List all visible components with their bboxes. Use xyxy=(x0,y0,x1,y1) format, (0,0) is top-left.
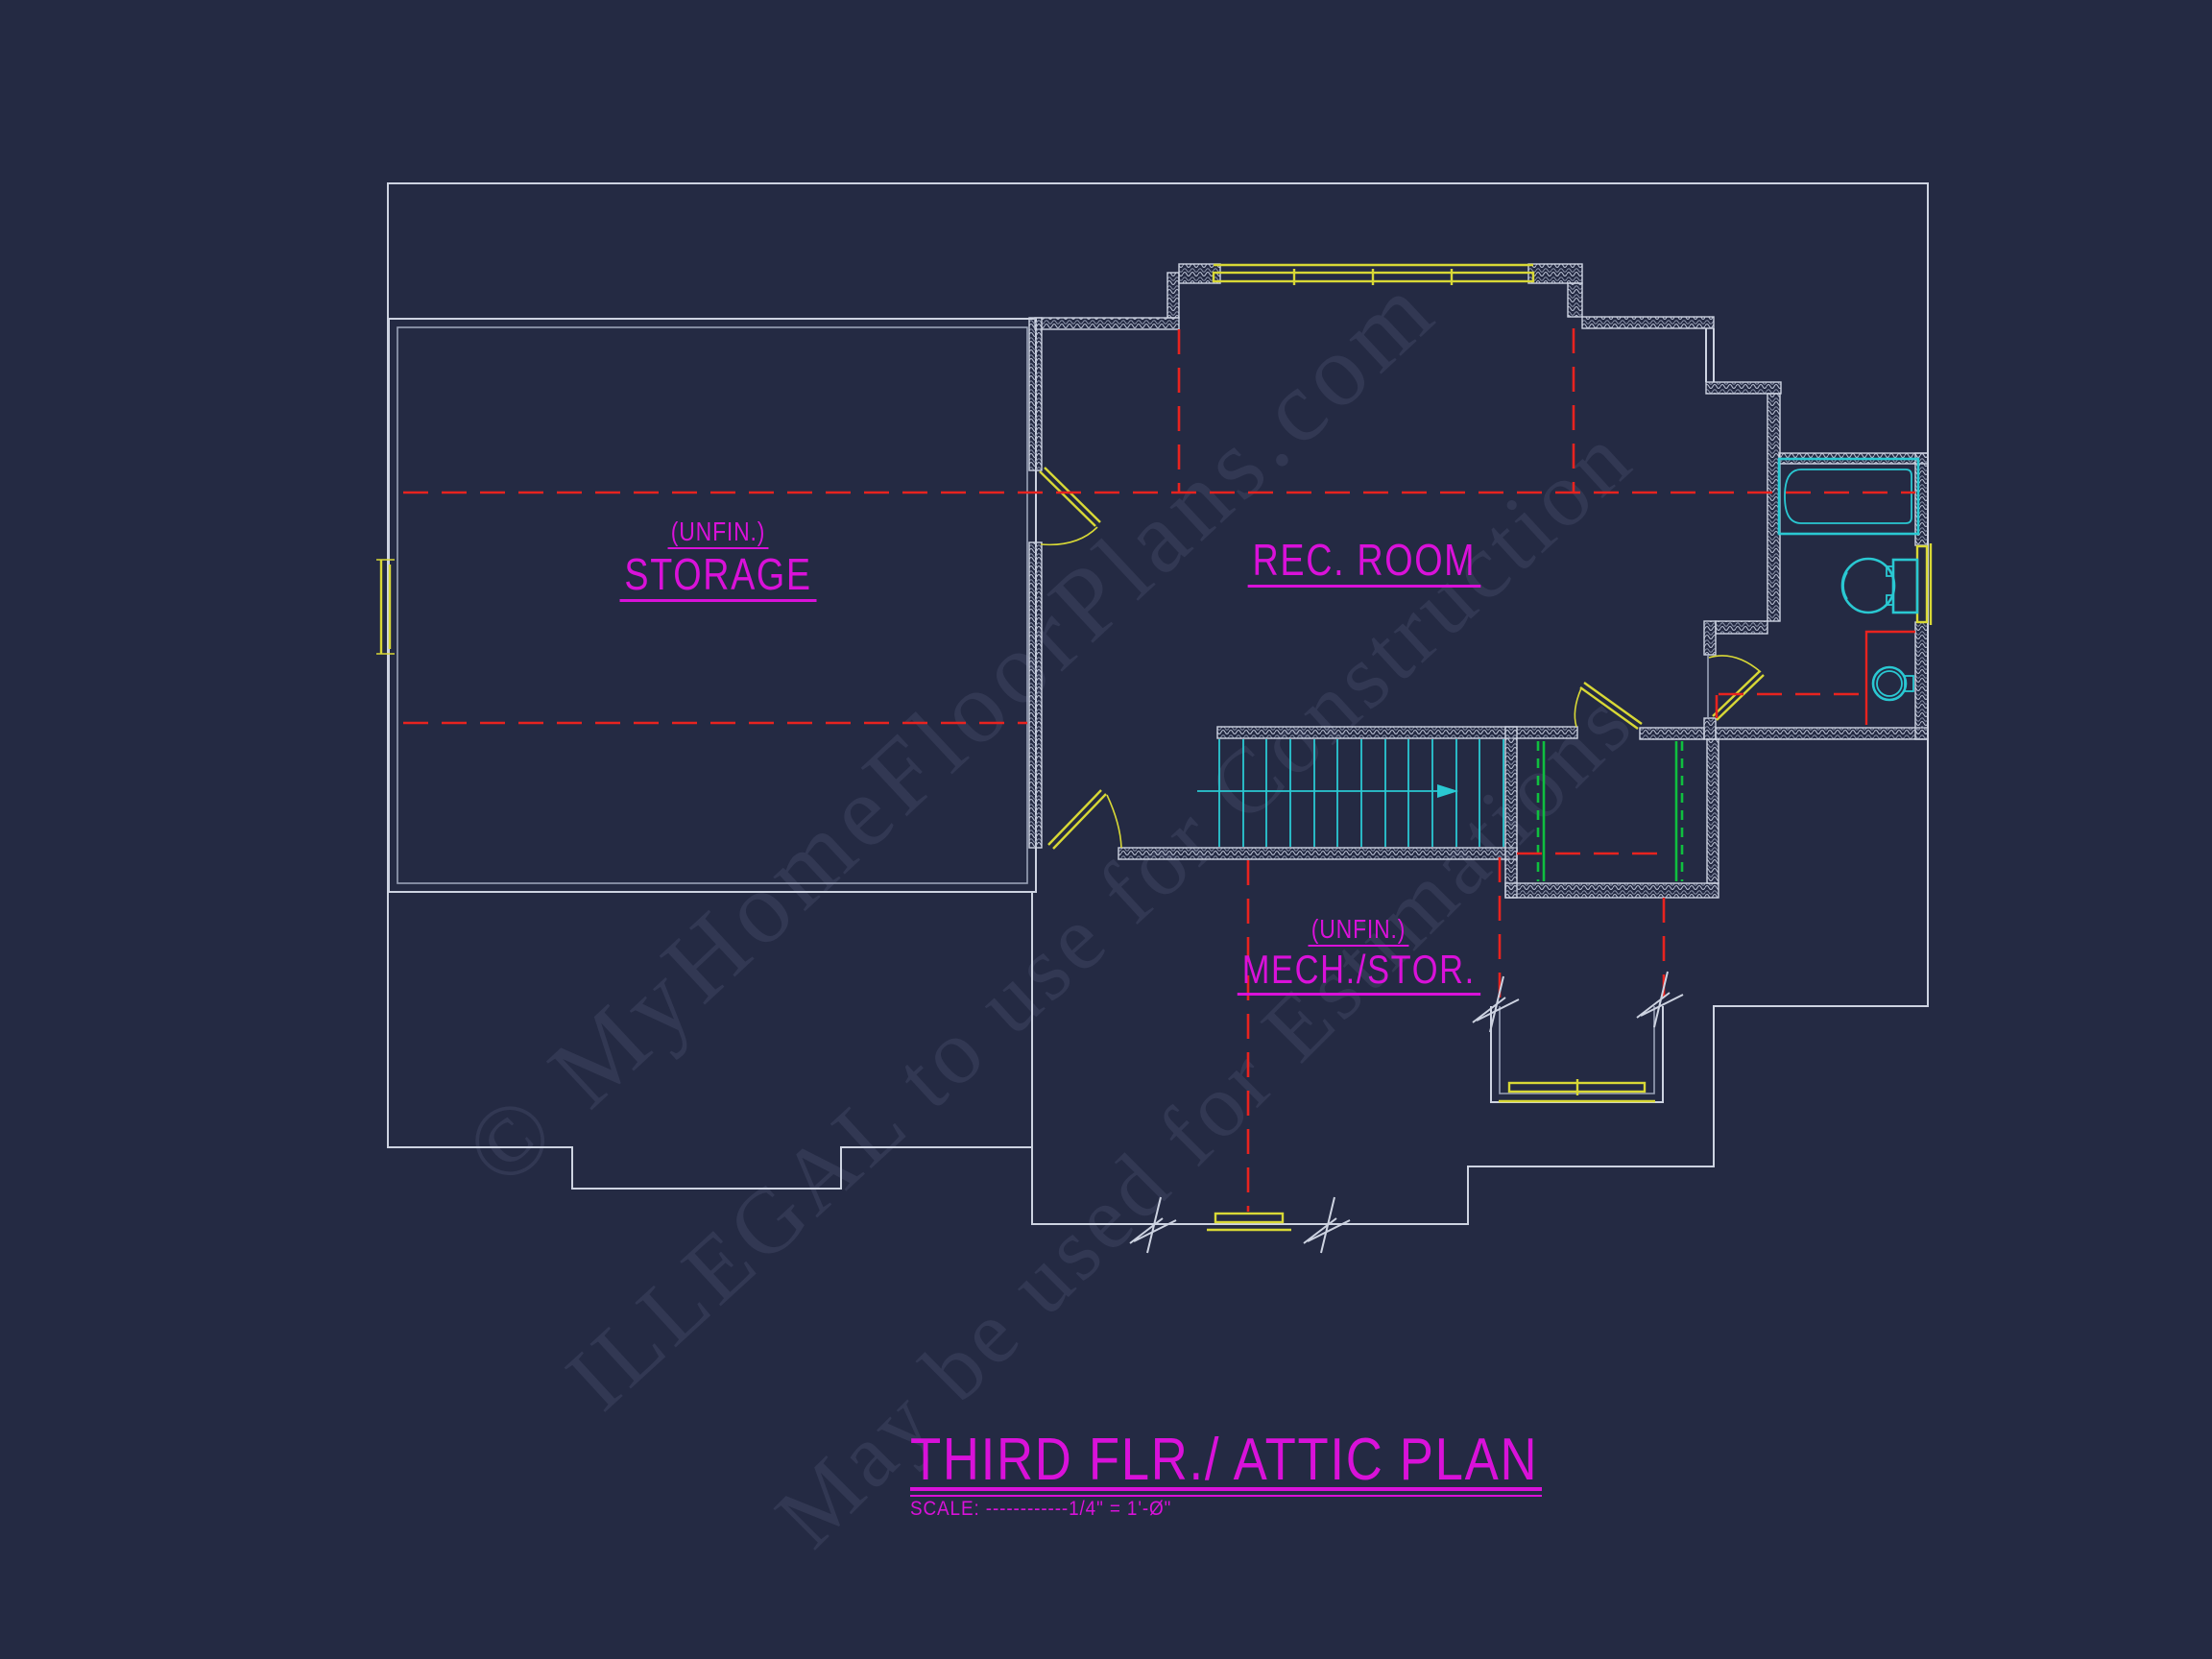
bay-window xyxy=(1499,1079,1655,1101)
rec-south-door xyxy=(1048,790,1121,849)
storage-room-label: (UNFIN.) STORAGE xyxy=(574,518,862,602)
scale-note: SCALE: ------------1/4" = 1'-Ø" xyxy=(910,1498,1171,1521)
break-marks xyxy=(1130,972,1683,1253)
ceiling-height-lines xyxy=(1538,741,1682,881)
title-underline-primary xyxy=(910,1487,1542,1491)
storage-room-walls xyxy=(389,319,1036,892)
floor-plan-drawing xyxy=(0,0,2212,1659)
storage-unfinished-note: (UNFIN.) xyxy=(668,518,769,549)
floor-plan-page: © MyHomeFloorPlans.com ILLEGAL to use fo… xyxy=(0,0,2212,1659)
plan-title: THIRD FLR./ ATTIC PLAN xyxy=(910,1431,1538,1490)
stairs xyxy=(1197,739,1503,847)
centerlines xyxy=(403,328,1915,1212)
toilet xyxy=(1842,559,1917,613)
stair-direction-arrow xyxy=(1197,784,1458,798)
rec-room-top-window xyxy=(1214,265,1533,285)
title-underline-secondary xyxy=(910,1495,1542,1497)
rec-room-label: REC. ROOM xyxy=(1220,538,1508,588)
bathtub xyxy=(1779,459,1918,534)
mech-room-name: MECH./STOR. xyxy=(1237,950,1479,996)
mech-unfinished-note: (UNFIN.) xyxy=(1309,916,1409,947)
mech-door xyxy=(1575,683,1642,729)
mech-room-label: (UNFIN.) MECH./STOR. xyxy=(1214,916,1503,996)
storage-left-window xyxy=(376,560,395,654)
exterior-roof-outline xyxy=(388,183,1928,1224)
storage-room-name: STORAGE xyxy=(619,552,816,602)
bottom-window xyxy=(1207,1214,1291,1230)
windows xyxy=(376,265,1931,1230)
sink xyxy=(1873,667,1913,700)
rec-room-name: REC. ROOM xyxy=(1248,538,1481,588)
rec-west-door xyxy=(1040,468,1100,544)
title-block: THIRD FLR./ ATTIC PLAN xyxy=(910,1431,1649,1490)
